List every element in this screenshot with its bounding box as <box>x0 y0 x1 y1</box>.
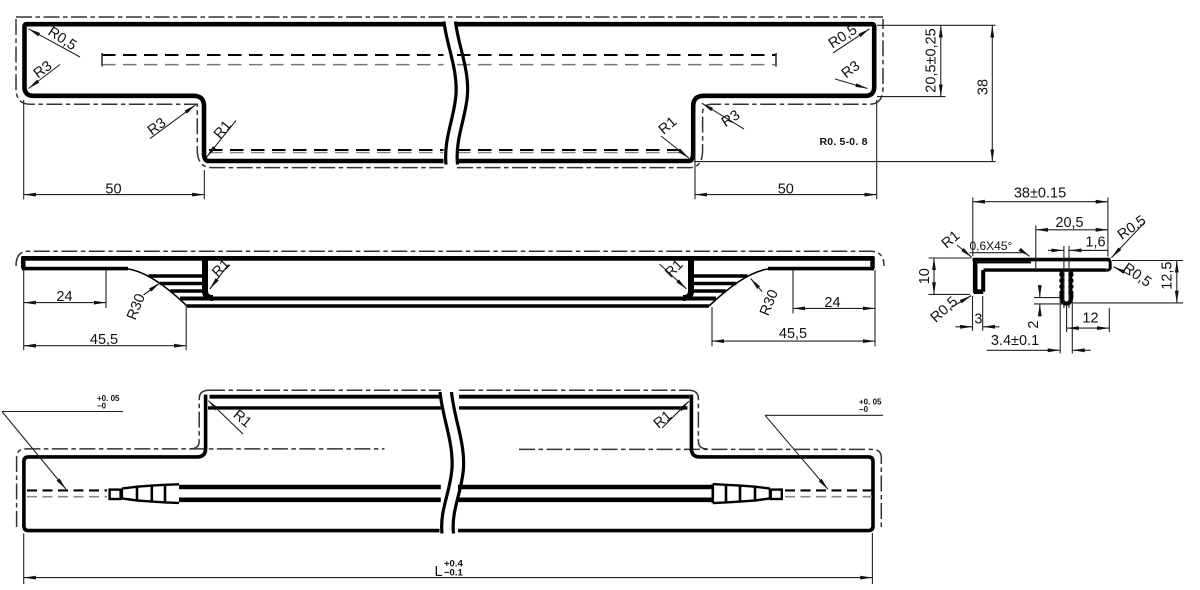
svg-text:24: 24 <box>56 289 72 305</box>
svg-text:R1: R1 <box>211 118 235 142</box>
svg-text:3: 3 <box>974 312 982 328</box>
svg-text:3.4±0.1: 3.4±0.1 <box>991 333 1039 349</box>
svg-text:R0,5: R0,5 <box>928 294 961 326</box>
svg-text:20,5: 20,5 <box>1055 215 1083 231</box>
svg-text:R3: R3 <box>145 115 169 139</box>
svg-text:12,5: 12,5 <box>1160 261 1176 289</box>
svg-text:50: 50 <box>105 181 121 197</box>
svg-text:R30: R30 <box>757 287 782 318</box>
svg-text:20,5±0,25: 20,5±0,25 <box>924 28 940 92</box>
svg-text:2: 2 <box>1026 321 1042 329</box>
svg-text:R0,5: R0,5 <box>45 24 79 54</box>
svg-text:38: 38 <box>976 79 992 95</box>
svg-text:45,5: 45,5 <box>90 332 118 348</box>
svg-text:1,6: 1,6 <box>1085 235 1105 251</box>
svg-text:−0.1: −0.1 <box>444 568 463 579</box>
svg-text:−0: −0 <box>97 402 107 411</box>
svg-text:R0.5: R0.5 <box>1115 213 1149 244</box>
svg-text:45,5: 45,5 <box>779 326 807 342</box>
svg-text:12: 12 <box>1082 311 1098 327</box>
svg-text:R3: R3 <box>719 107 743 131</box>
svg-text:R1: R1 <box>939 228 963 252</box>
svg-text:10: 10 <box>917 268 933 284</box>
svg-text:R0,5: R0,5 <box>1120 260 1154 291</box>
svg-text:R1: R1 <box>230 407 254 431</box>
svg-text:R0. 5-0. 8: R0. 5-0. 8 <box>820 136 868 148</box>
svg-text:50: 50 <box>778 181 794 197</box>
svg-text:R1: R1 <box>656 114 680 138</box>
svg-text:24: 24 <box>824 295 840 311</box>
svg-text:R3: R3 <box>31 58 55 82</box>
svg-text:R3: R3 <box>839 58 863 82</box>
svg-text:R1: R1 <box>651 408 675 432</box>
svg-text:−0: −0 <box>859 405 869 414</box>
svg-text:38±0.15: 38±0.15 <box>1014 186 1066 202</box>
svg-text:R30: R30 <box>124 292 149 323</box>
svg-text:L: L <box>434 564 442 580</box>
svg-text:0,6X45°: 0,6X45° <box>970 239 1013 253</box>
